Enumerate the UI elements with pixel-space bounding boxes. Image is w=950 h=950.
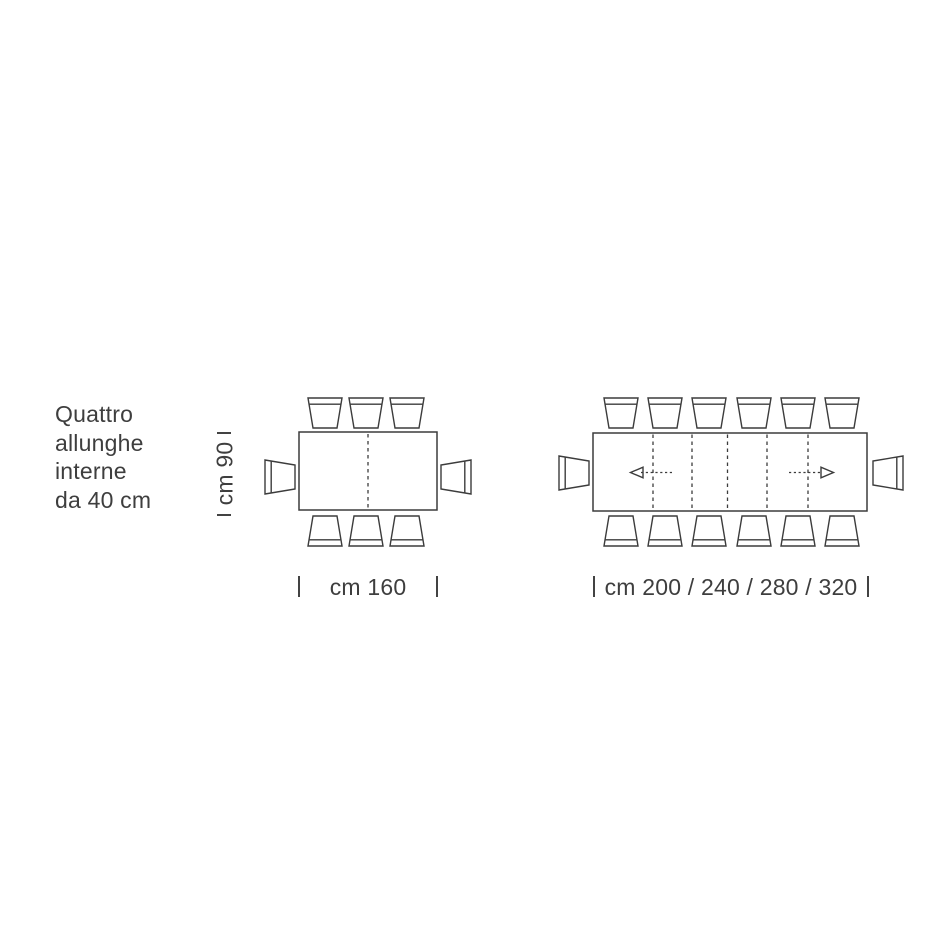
chair <box>648 516 682 546</box>
dim-tick-right <box>867 576 869 597</box>
chair <box>349 398 383 428</box>
chair <box>349 516 383 546</box>
closed-table-group <box>265 398 471 546</box>
chair <box>873 456 903 490</box>
chair <box>308 398 342 428</box>
table-dimension-diagram: Quattro allunghe interne da 40 cm cm 90 <box>0 0 950 950</box>
chair <box>692 516 726 546</box>
extended-width-dimension: cm 200 / 240 / 280 / 320 <box>593 573 869 601</box>
tables-plan-drawing <box>0 0 950 950</box>
chair <box>648 398 682 428</box>
chair <box>559 456 589 490</box>
dim-tick-left <box>298 576 300 597</box>
chair <box>737 398 771 428</box>
closed-width-dimension: cm 160 <box>298 573 438 601</box>
chair <box>737 516 771 546</box>
extended-width-label: cm 200 / 240 / 280 / 320 <box>605 574 858 601</box>
chair <box>308 516 342 546</box>
chair <box>781 398 815 428</box>
chair <box>265 460 295 494</box>
chair <box>692 398 726 428</box>
extended-table-top <box>593 433 867 511</box>
chair <box>390 398 424 428</box>
chair <box>604 398 638 428</box>
chair <box>825 516 859 546</box>
chair <box>781 516 815 546</box>
chair <box>825 398 859 428</box>
dim-tick-left <box>593 576 595 597</box>
chair <box>441 460 471 494</box>
closed-width-label: cm 160 <box>330 574 407 601</box>
dim-tick-right <box>436 576 438 597</box>
extended-table-group <box>559 398 903 546</box>
chair <box>604 516 638 546</box>
chair <box>390 516 424 546</box>
